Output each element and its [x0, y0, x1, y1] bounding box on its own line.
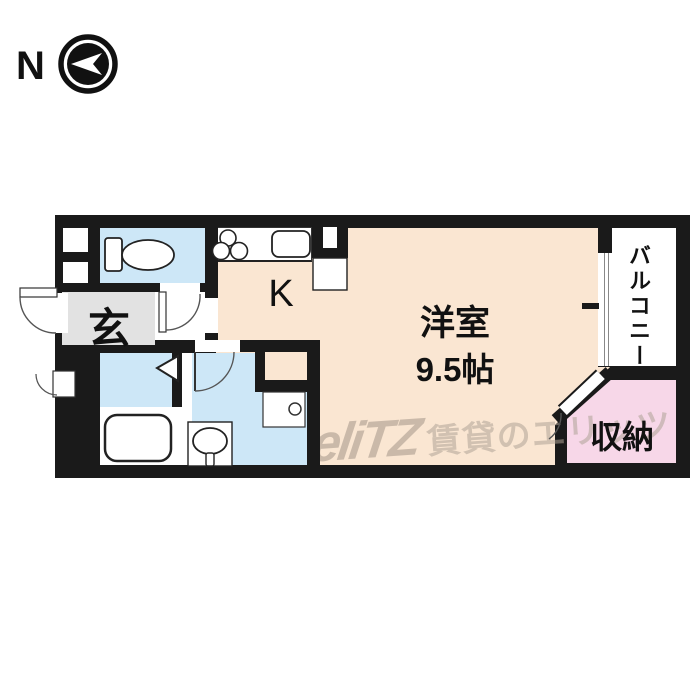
toilet-tank	[105, 238, 122, 271]
floor-plan: 玄 K 洋室 9.5帖 バルコニー 収納	[55, 215, 690, 478]
folding-door-icon	[157, 356, 178, 381]
kitchen-label: K	[259, 273, 303, 316]
door-swing-arc	[166, 294, 200, 330]
stove-burners-icon	[213, 243, 230, 260]
door-swing-arc	[195, 352, 234, 391]
stove-burners-icon	[231, 243, 248, 260]
swing-door-icon	[20, 288, 57, 297]
washing-machine-pan-icon	[263, 392, 305, 427]
toilet-icon	[122, 240, 174, 270]
storage-label: 収納	[572, 412, 672, 458]
door-swing-arc	[20, 297, 56, 333]
washbasin-icon	[193, 428, 227, 454]
entrance-label: 玄	[81, 295, 137, 356]
service-door	[53, 371, 75, 397]
main-room-name: 洋室	[370, 301, 540, 347]
compass-north-arrow-icon	[56, 32, 120, 96]
main-room-size: 9.5帖	[370, 347, 540, 393]
balcony-label: バルコニー	[626, 231, 654, 381]
refrigerator-space	[313, 258, 347, 290]
kitchen-sink-icon	[272, 231, 310, 257]
washbasin-faucet	[206, 453, 214, 466]
bathtub-icon	[105, 415, 171, 461]
compass-north-label: N	[16, 44, 45, 89]
swing-door-icon	[159, 292, 166, 332]
main-room-label: 洋室 9.5帖	[370, 301, 540, 393]
